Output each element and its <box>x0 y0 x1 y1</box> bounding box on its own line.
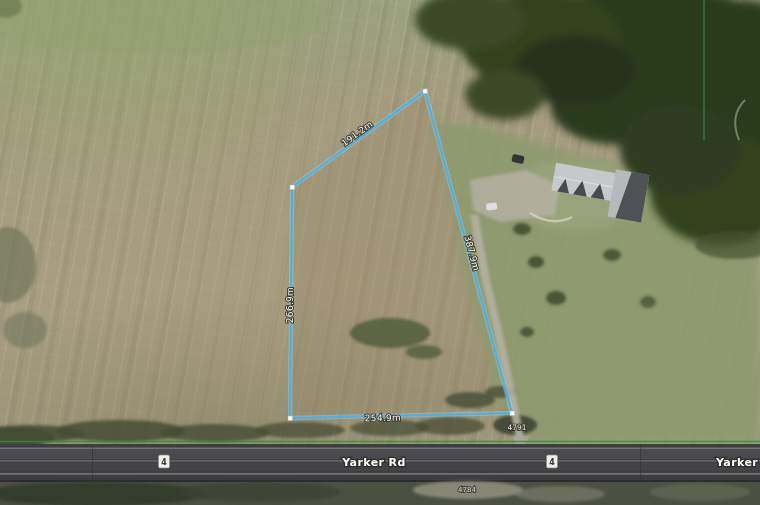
green-band <box>0 0 330 53</box>
vertex-marker[interactable] <box>510 411 515 416</box>
bush <box>528 256 544 268</box>
bush <box>520 327 534 337</box>
pavement-joint <box>640 444 641 482</box>
address-label-4791: 4791 <box>507 423 526 432</box>
south-verge <box>0 481 760 505</box>
gravel-patch <box>650 483 750 501</box>
vertex-marker[interactable] <box>288 416 293 421</box>
bush <box>603 249 621 261</box>
bush <box>640 296 656 308</box>
road-name-label: Yarker Rd <box>341 456 405 469</box>
road-edge-line <box>0 448 760 450</box>
address-label-south: 4784 <box>458 486 476 494</box>
route-shield: 4 <box>159 455 170 468</box>
bush <box>546 291 566 305</box>
route-shield: 4 <box>547 455 558 468</box>
vertex-marker[interactable] <box>423 89 428 94</box>
route-shield-number: 4 <box>549 458 555 467</box>
aerial-map-view[interactable]: 191.2m 266.9m 254.9m 387.9m 4791 4784 4 … <box>0 0 760 505</box>
bush <box>0 227 36 303</box>
bush <box>350 318 430 348</box>
tree-blob <box>465 70 545 120</box>
bush <box>406 345 442 359</box>
gravel-patch <box>515 486 605 502</box>
edge-label-west: 266.9m <box>285 287 295 323</box>
verge-scrub <box>180 482 340 502</box>
road-shoulder <box>0 480 760 482</box>
edge-label-south: 254.9m <box>365 413 402 424</box>
roadside-scrub <box>415 417 485 435</box>
roadside-scrub <box>160 424 270 442</box>
road-name-label-truncated: Yarker <box>715 456 758 469</box>
map-overlay: 191.2m 266.9m 254.9m 387.9m 4791 4784 4 … <box>0 0 760 505</box>
bush <box>513 223 531 235</box>
pavement-joint <box>92 444 93 482</box>
road-edge-line <box>0 473 760 475</box>
bush <box>3 312 47 348</box>
roadside-scrub <box>255 422 345 438</box>
vertex-marker[interactable] <box>290 185 295 190</box>
route-shield-number: 4 <box>161 458 167 467</box>
